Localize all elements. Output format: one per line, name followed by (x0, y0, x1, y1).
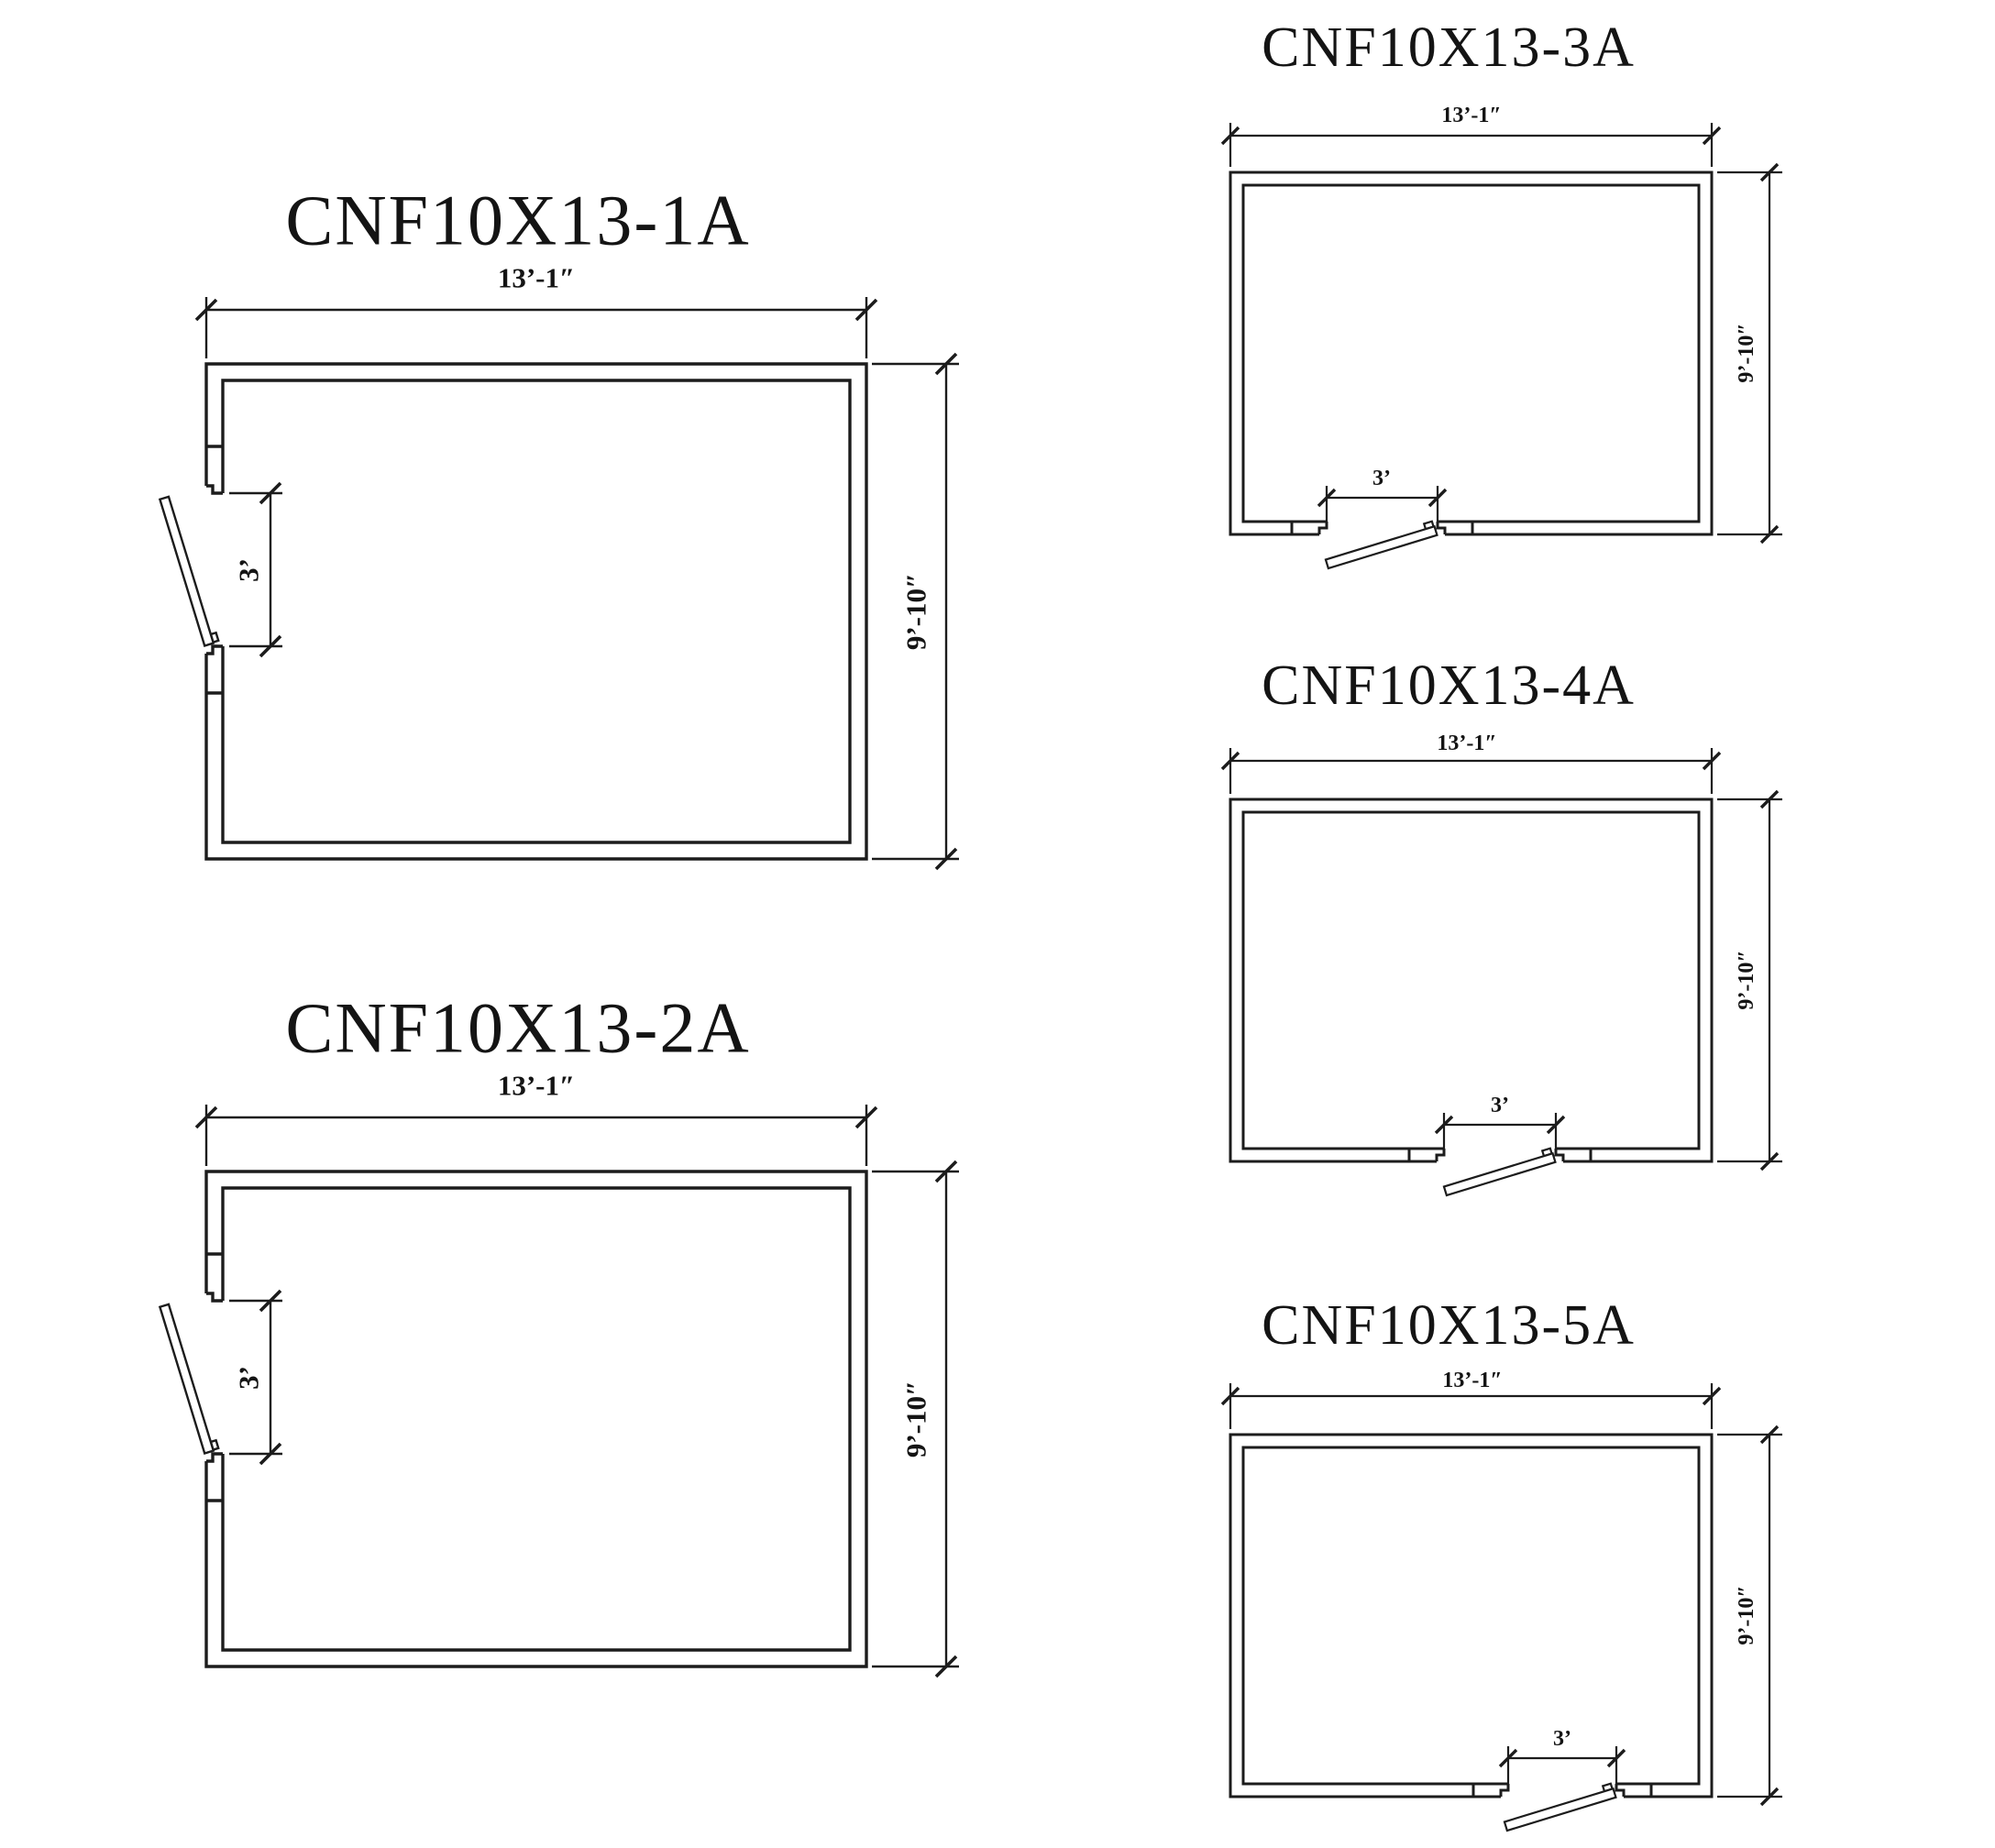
plan-title: CNF10X13-5A (1262, 1294, 1636, 1357)
height-dimension-label: 9’-10″ (900, 573, 932, 650)
door-jamb-step (1501, 1784, 1508, 1797)
plan-title: CNF10X13-4A (1262, 654, 1636, 717)
height-dimension-label: 9’-10″ (1735, 950, 1758, 1009)
room-outer-wall (1230, 1435, 1712, 1797)
door-jamb-step (206, 646, 223, 654)
room-inner-wall (1243, 185, 1699, 522)
door-leaf (160, 1303, 218, 1453)
floor-plan-1a: CNF10X13-1A 13’-1″ 9’-10″ 3’ (160, 181, 959, 870)
height-dimension-label: 9’-10″ (1735, 323, 1758, 382)
room-inner-wall (223, 1188, 850, 1650)
door-jamb-step (206, 1293, 223, 1301)
door-leaf (1503, 1783, 1615, 1831)
width-dimension-label: 13’-1″ (1442, 1369, 1502, 1392)
door-width-label: 3’ (1553, 1727, 1571, 1751)
width-dimension-label: 13’-1″ (498, 1070, 575, 1102)
width-dimension-label: 13’-1″ (498, 262, 575, 294)
door-leaf-panel (1444, 1153, 1556, 1195)
door-leaf (160, 495, 218, 645)
room-inner-wall (223, 380, 850, 842)
room-outer-wall (206, 364, 866, 859)
blueprint-canvas: CNF10X13-1A 13’-1″ 9’-10″ 3’ CNF10X13-2A… (0, 0, 1995, 1848)
door-width-label: 3’ (1372, 467, 1391, 490)
floor-plan-4a: CNF10X13-4A 13’-1″ 9’-10″ 3’ (1222, 654, 1782, 1195)
width-dimension-label: 13’-1″ (1437, 731, 1496, 755)
room-outer-wall (206, 1171, 866, 1666)
door-jamb-step (1438, 522, 1445, 534)
door-width-label: 3’ (233, 1366, 265, 1390)
door-leaf (1442, 1148, 1555, 1195)
door-leaf (1324, 521, 1437, 568)
door-leaf-panel (1505, 1788, 1616, 1831)
room-outer-wall (1230, 799, 1712, 1161)
door-leaf-panel (160, 497, 213, 646)
plan-title: CNF10X13-2A (285, 988, 750, 1068)
door-leaf-panel (160, 1304, 213, 1454)
width-dimension-label: 13’-1″ (1441, 104, 1501, 127)
door-jamb-step (1437, 1149, 1444, 1161)
height-dimension-label: 9’-10″ (1735, 1585, 1758, 1644)
door-jamb-step (1616, 1784, 1624, 1797)
height-dimension-label: 9’-10″ (900, 1380, 932, 1457)
floor-plan-3a: CNF10X13-3A 13’-1″ 9’-10″ 3’ (1222, 16, 1782, 568)
door-width-label: 3’ (1491, 1094, 1509, 1117)
door-leaf-panel (1326, 526, 1438, 568)
plan-title: CNF10X13-1A (285, 181, 750, 260)
room-inner-wall (1243, 1447, 1699, 1784)
room-outer-wall (1230, 172, 1712, 534)
plan-title: CNF10X13-3A (1262, 16, 1636, 79)
drawing-sheet: CNF10X13-1A 13’-1″ 9’-10″ 3’ CNF10X13-2A… (0, 0, 1995, 1848)
room-inner-wall (1243, 812, 1699, 1149)
door-width-label: 3’ (233, 558, 265, 582)
door-jamb-step (206, 1454, 223, 1461)
floor-plan-2a: CNF10X13-2A 13’-1″ 9’-10″ 3’ (160, 988, 959, 1677)
door-jamb-step (1556, 1149, 1563, 1161)
door-jamb-step (1319, 522, 1327, 534)
floor-plan-5a: CNF10X13-5A 13’-1″ 9’-10″ 3’ (1222, 1294, 1782, 1831)
door-jamb-step (206, 486, 223, 493)
